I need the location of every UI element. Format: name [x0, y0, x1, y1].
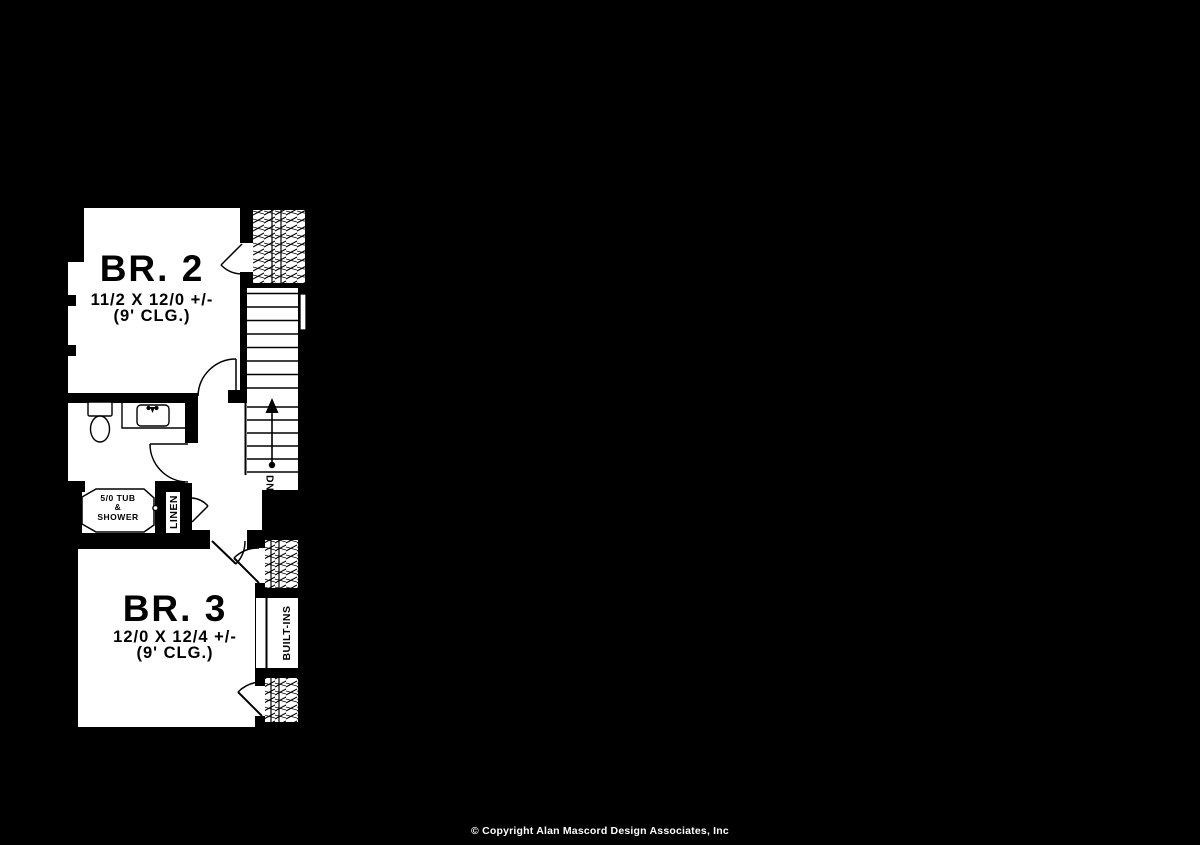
br2-ceiling: (9' CLG.): [113, 307, 190, 325]
hall: [198, 403, 247, 483]
stair-landing: [192, 483, 262, 530]
br3-ceiling: (9' CLG.): [136, 644, 213, 662]
bath-door-opening: [185, 443, 198, 483]
wall-tub-left-stub: [60, 481, 85, 492]
toilet-bowl: [91, 416, 110, 442]
hatch-mid: [265, 540, 298, 588]
br2-room-name: BR. 2: [100, 248, 205, 289]
br2-hall-door-opening: [198, 393, 228, 403]
wall-stair-newel: [228, 390, 247, 402]
br3-entry-opening: [210, 530, 247, 549]
hatch-bottom: [265, 678, 298, 722]
wall-linen-right-top: [180, 483, 192, 495]
floor-plan-page: BR. 2 11/2 X 12/0 +/- (9' CLG.) BR. 3 12…: [0, 0, 1200, 845]
wall-notch-2: [68, 345, 76, 356]
hatch-top: [253, 210, 305, 283]
sink-faucet-handle-right: [155, 407, 158, 410]
stair-dn-label: DN: [264, 475, 276, 491]
br3-room-name: BR. 3: [123, 588, 228, 629]
stair-handrail: [300, 294, 306, 330]
copyright-notice: © Copyright Alan Mascord Design Associat…: [471, 825, 729, 837]
floor-plan-drawing: BR. 2 11/2 X 12/0 +/- (9' CLG.) BR. 3 12…: [0, 0, 1200, 845]
tub-label-line3: SHOWER: [97, 512, 138, 522]
arrow-origin-dot: [269, 462, 275, 468]
toilet-tank: [88, 402, 112, 416]
builtins-label: BUILT-INS: [281, 605, 293, 660]
wall-linen-right-bottom: [180, 522, 192, 533]
br3-attic-top-opening: [255, 548, 265, 583]
tub-label-line2: &: [115, 502, 122, 512]
sink-faucet-handle-left: [147, 407, 150, 410]
tub-faucet: [153, 505, 158, 510]
wall-notch-1: [68, 295, 76, 306]
linen-label: LINEN: [168, 495, 180, 529]
br2-attic-door-opening: [240, 243, 253, 272]
